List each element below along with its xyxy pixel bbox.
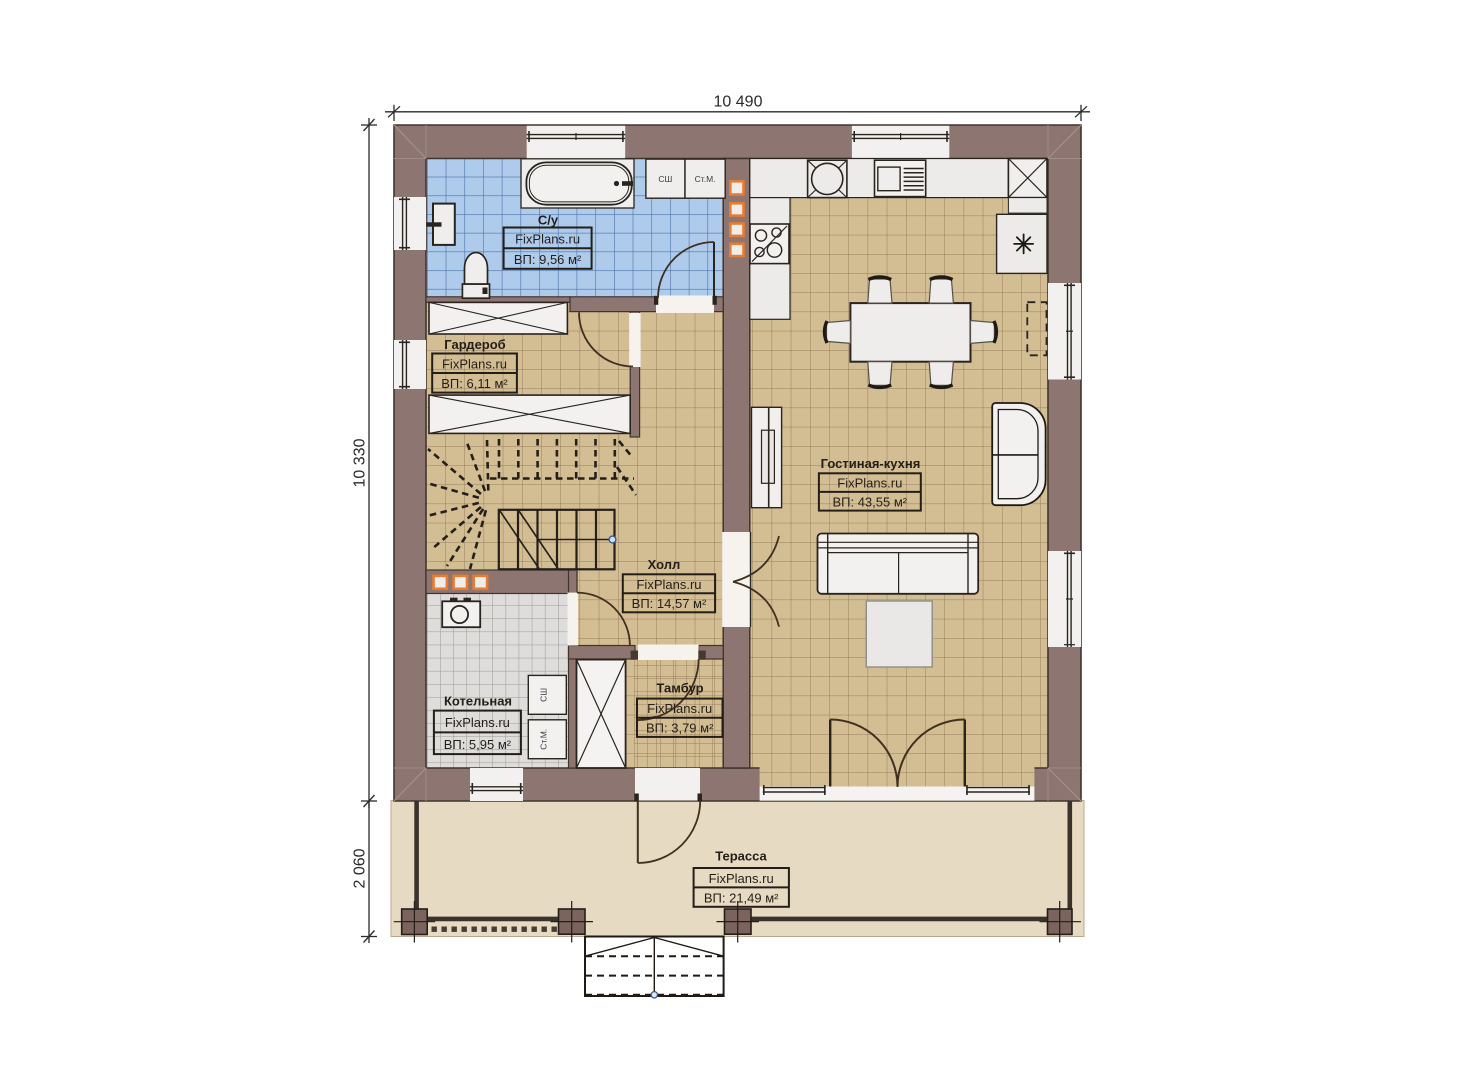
- svg-text:Холл: Холл: [648, 557, 681, 572]
- svg-text:Котельная: Котельная: [444, 694, 512, 709]
- svg-text:СШ: СШ: [658, 174, 672, 184]
- svg-text:С/у: С/у: [538, 213, 559, 228]
- svg-text:ВП: 6,11 м²: ВП: 6,11 м²: [441, 376, 508, 391]
- svg-text:FixPlans.ru: FixPlans.ru: [709, 871, 774, 886]
- svg-text:СШ: СШ: [539, 688, 549, 702]
- svg-text:2 060: 2 060: [352, 848, 369, 888]
- svg-text:ВП: 14,57 м²: ВП: 14,57 м²: [632, 596, 707, 611]
- svg-text:FixPlans.ru: FixPlans.ru: [442, 356, 507, 371]
- svg-text:ВП: 9,56 м²: ВП: 9,56 м²: [514, 252, 582, 267]
- svg-text:ВП: 5,95 м²: ВП: 5,95 м²: [444, 737, 512, 752]
- svg-text:Гостиная-кухня: Гостиная-кухня: [821, 456, 921, 471]
- svg-text:FixPlans.ru: FixPlans.ru: [647, 701, 712, 716]
- svg-text:10 490: 10 490: [714, 94, 763, 111]
- svg-text:Гардероб: Гардероб: [444, 337, 505, 352]
- svg-text:FixPlans.ru: FixPlans.ru: [837, 475, 902, 490]
- svg-text:FixPlans.ru: FixPlans.ru: [445, 715, 510, 730]
- svg-text:ВП: 43,55 м²: ВП: 43,55 м²: [832, 495, 907, 510]
- svg-text:10 330: 10 330: [352, 438, 369, 487]
- svg-text:Терасса: Терасса: [715, 849, 767, 864]
- svg-text:Тамбур: Тамбур: [656, 681, 703, 696]
- svg-text:Ст.М.: Ст.М.: [695, 174, 716, 184]
- svg-text:FixPlans.ru: FixPlans.ru: [515, 231, 580, 246]
- svg-text:ВП: 21,49 м²: ВП: 21,49 м²: [704, 890, 779, 905]
- svg-text:FixPlans.ru: FixPlans.ru: [636, 577, 701, 592]
- svg-text:ВП: 3,79 м²: ВП: 3,79 м²: [646, 721, 714, 736]
- svg-text:Ст.М.: Ст.М.: [539, 729, 549, 750]
